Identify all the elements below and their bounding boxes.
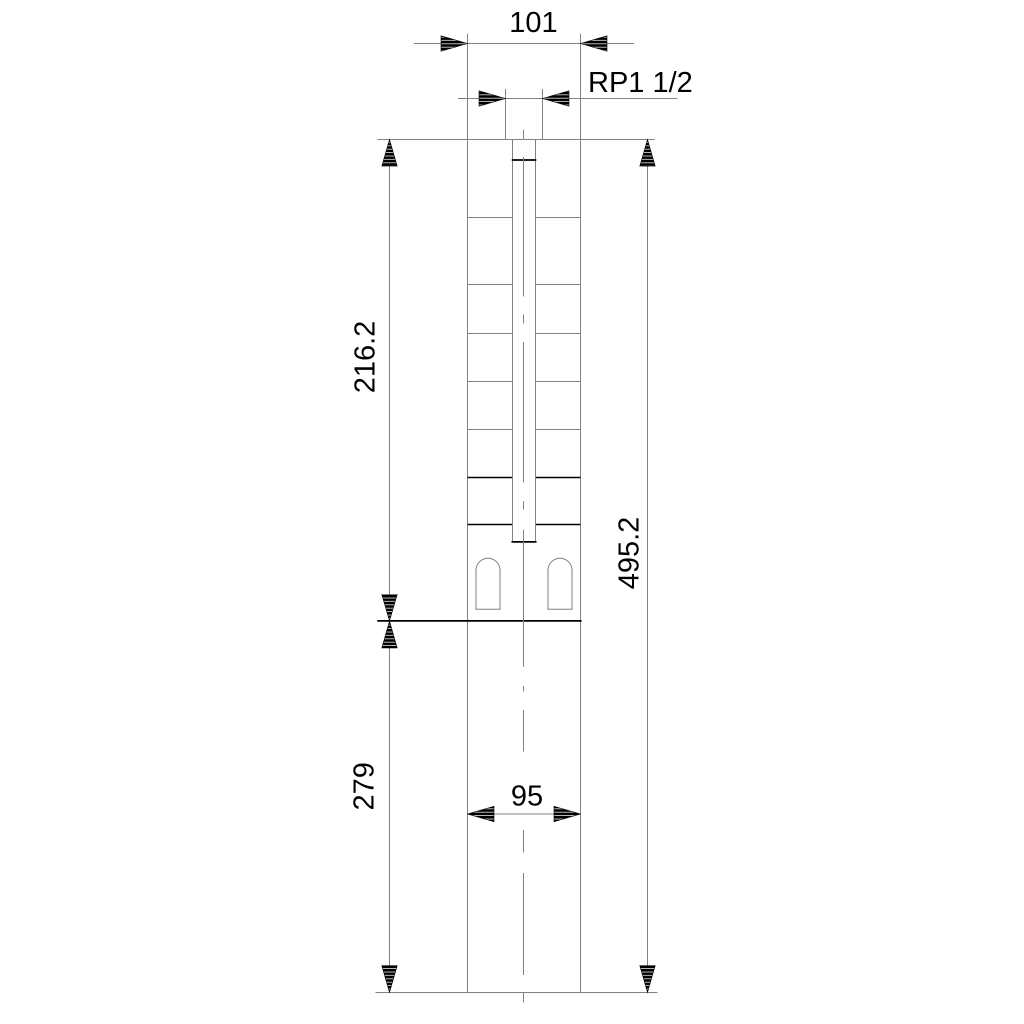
- svg-text:216.2: 216.2: [350, 321, 382, 394]
- svg-text:101: 101: [509, 7, 557, 39]
- svg-text:RP1 1/2: RP1 1/2: [588, 67, 693, 99]
- svg-text:95: 95: [511, 781, 543, 813]
- svg-text:495.2: 495.2: [614, 517, 646, 590]
- svg-text:279: 279: [349, 762, 381, 810]
